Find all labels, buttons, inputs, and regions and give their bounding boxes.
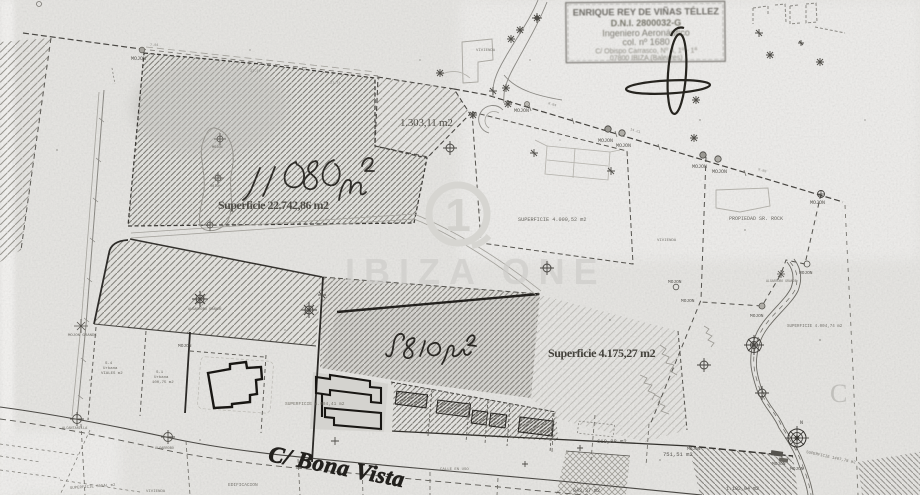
svg-text:Urbana: Urbana: [154, 375, 169, 380]
svg-text:MOJON: MOJON: [514, 108, 529, 114]
svg-text:N: N: [800, 420, 803, 426]
svg-text:MOJON: MOJON: [212, 146, 223, 150]
svg-text:1.102,04 m2: 1.102,04 m2: [726, 486, 759, 492]
svg-text:D.N.I. 2800032-G: D.N.I. 2800032-G: [611, 18, 682, 29]
svg-text:751,51 m2: 751,51 m2: [663, 451, 693, 458]
svg-text:MOJON: MOJON: [810, 200, 825, 206]
svg-text:843,37 m2: 843,37 m2: [573, 488, 600, 494]
svg-text:Superficie 22.742,86 m2: Superficie 22.742,86 m2: [218, 198, 329, 212]
svg-text:S-4: S-4: [105, 362, 113, 366]
svg-text:C: C: [830, 379, 847, 408]
svg-text:SUPERFICIE 4.000,52 m2: SUPERFICIE 4.000,52 m2: [518, 217, 587, 223]
svg-text:33.10: 33.10: [250, 70, 261, 74]
svg-text:MOJON: MOJON: [799, 270, 813, 276]
svg-text:1: 1: [445, 189, 471, 241]
svg-text:ALCANTARILLA: ALCANTARILLA: [62, 427, 88, 431]
svg-text:SUPERFICIE 4.004,74 m2: SUPERFICIE 4.004,74 m2: [787, 325, 843, 329]
svg-text:MOJON: MOJON: [598, 138, 613, 144]
svg-text:CALLE EN USO: CALLE EN USO: [440, 468, 469, 472]
svg-text:MOJON: MOJON: [668, 279, 682, 285]
svg-text:EDIFICACION: EDIFICACION: [228, 482, 258, 488]
svg-text:27.71: 27.71: [330, 82, 341, 86]
svg-text:PROPIEDAD SR. ROCK: PROPIEDAD SR. ROCK: [729, 216, 783, 222]
svg-text:Urbana: Urbana: [103, 366, 118, 371]
svg-text:MOJON: MOJON: [178, 343, 192, 349]
svg-text:col. nº 1680: col. nº 1680: [622, 37, 669, 47]
svg-text:619,88 m2: 619,88 m2: [597, 438, 627, 445]
svg-text:MOJON: MOJON: [210, 185, 221, 189]
svg-text:VIVIENDA: VIVIENDA: [657, 239, 677, 243]
svg-text:07800 IBIZA (Baleares): 07800 IBIZA (Baleares): [610, 55, 683, 63]
svg-text:MOJON: MOJON: [750, 313, 764, 319]
svg-text:MOJON: MOJON: [131, 56, 146, 62]
svg-text:1.303,11 m2: 1.303,11 m2: [400, 117, 453, 129]
svg-text:MOJON: MOJON: [772, 461, 786, 467]
svg-text:S-1: S-1: [156, 371, 164, 375]
svg-text:Superficie 4.175,27 m2: Superficie 4.175,27 m2: [548, 346, 656, 360]
svg-text:VIVIENDA: VIVIENDA: [146, 490, 166, 494]
svg-text:ALGARROBO GRANDE: ALGARROBO GRANDE: [766, 279, 797, 283]
svg-text:MOJON: MOJON: [790, 466, 804, 472]
svg-text:MOJON: MOJON: [692, 164, 707, 170]
svg-text:MOJON: MOJON: [616, 143, 631, 149]
svg-text:SUPERFICIE 4.004,41 m2: SUPERFICIE 4.004,41 m2: [285, 401, 345, 407]
svg-text:VIALES m2: VIALES m2: [101, 372, 123, 376]
svg-text:ALGARROBO: ALGARROBO: [155, 447, 174, 451]
svg-text:VIVIENDA: VIVIENDA: [476, 49, 496, 53]
svg-text:IBIZA ONE: IBIZA ONE: [345, 251, 607, 292]
svg-text:ENRIQUE REY DE VIÑAS TÉLLEZ: ENRIQUE REY DE VIÑAS TÉLLEZ: [573, 5, 720, 17]
svg-text:MOJON: MOJON: [712, 169, 727, 175]
svg-text:7.04: 7.04: [150, 44, 158, 48]
svg-text:MOJON: MOJON: [681, 298, 695, 304]
svg-text:100,75 m2: 100,75 m2: [152, 381, 174, 385]
svg-text:ALGARROBO GRANDE: ALGARROBO GRANDE: [188, 308, 222, 312]
svg-text:MOJON GRANDE: MOJON GRANDE: [68, 334, 97, 338]
svg-text:MOJON: MOJON: [687, 446, 701, 452]
